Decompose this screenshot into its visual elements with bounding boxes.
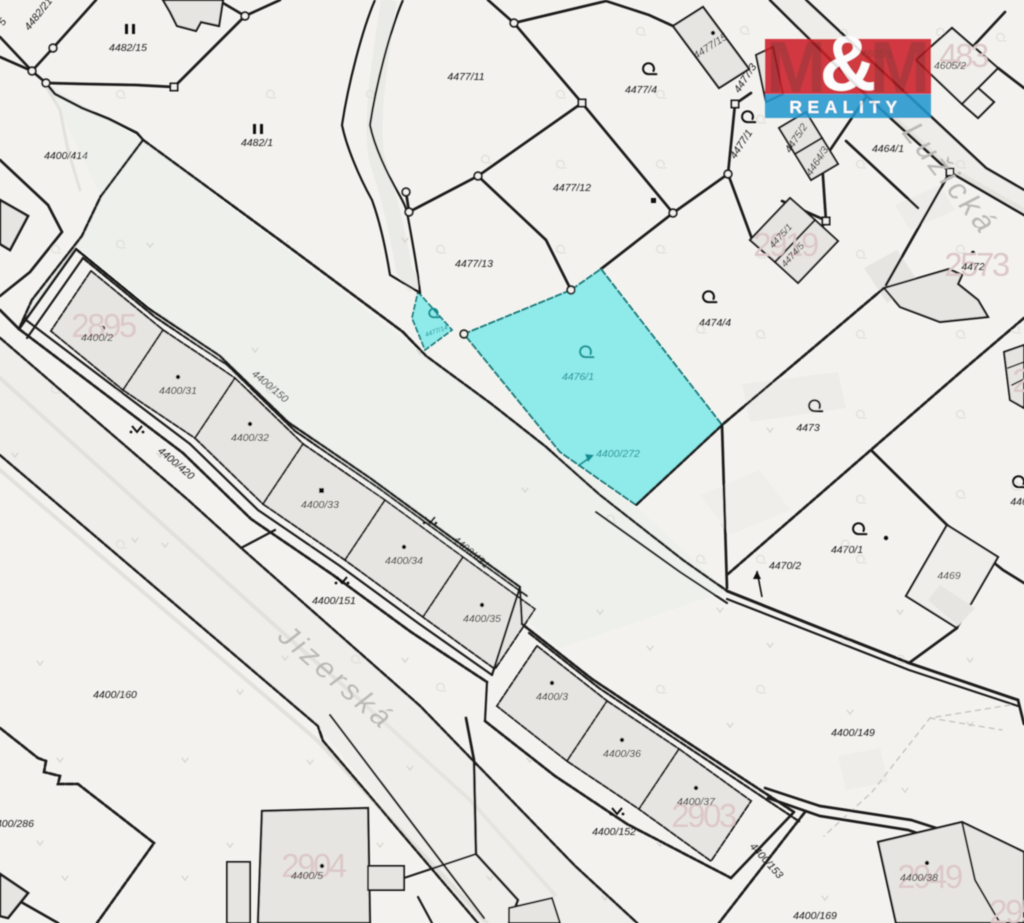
svg-text:4470/2: 4470/2 [769, 560, 801, 572]
svg-text:295: 295 [989, 893, 1024, 923]
svg-text:4605/2: 4605/2 [934, 60, 966, 72]
svg-text:4400/34: 4400/34 [385, 555, 423, 567]
svg-text:4482/1: 4482/1 [241, 137, 273, 149]
svg-text:4400/149: 4400/149 [831, 727, 875, 739]
svg-text:4605/1: 4605/1 [861, 48, 893, 60]
svg-text:4400/35: 4400/35 [463, 613, 501, 625]
svg-text:4400/5: 4400/5 [291, 870, 323, 882]
svg-text:4472: 4472 [961, 261, 985, 273]
svg-text:4400/38: 4400/38 [900, 872, 938, 884]
svg-text:4400/2: 4400/2 [81, 332, 113, 344]
svg-text:4400/272: 4400/272 [596, 448, 640, 460]
svg-text:&: & [820, 19, 876, 107]
svg-text:4400/36: 4400/36 [603, 748, 641, 760]
svg-text:4477/11: 4477/11 [447, 71, 484, 83]
svg-text:4474/4: 4474/4 [699, 317, 731, 329]
svg-text:4477/12: 4477/12 [553, 182, 591, 194]
svg-text:REALITY: REALITY [789, 97, 902, 117]
svg-text:4476/1: 4476/1 [562, 371, 594, 383]
svg-text:4400/286: 4400/286 [0, 818, 34, 830]
svg-text:4473: 4473 [796, 422, 820, 434]
svg-text:4470/1: 4470/1 [831, 544, 863, 556]
svg-text:4468: 4468 [1010, 496, 1024, 508]
svg-text:4482/15: 4482/15 [109, 42, 147, 54]
svg-text:4400/33: 4400/33 [301, 499, 339, 511]
svg-text:4400/37: 4400/37 [677, 796, 716, 808]
svg-text:4400/414: 4400/414 [44, 150, 88, 162]
svg-text:4477/13: 4477/13 [455, 258, 493, 270]
svg-text:4400/32: 4400/32 [231, 432, 269, 444]
svg-text:4469: 4469 [937, 570, 961, 582]
svg-text:2: 2 [1012, 362, 1024, 399]
svg-text:4464/1: 4464/1 [872, 143, 904, 155]
svg-text:4400/152: 4400/152 [592, 826, 636, 838]
svg-text:4400/3: 4400/3 [536, 691, 568, 703]
svg-text:4400/31: 4400/31 [159, 385, 197, 397]
svg-text:4477/4: 4477/4 [625, 84, 657, 96]
svg-text:M: M [766, 28, 826, 108]
svg-text:4400/169: 4400/169 [793, 910, 837, 922]
svg-text:M: M [870, 28, 930, 108]
svg-text:4400/160: 4400/160 [93, 689, 137, 701]
svg-text:4400/151: 4400/151 [312, 595, 356, 607]
